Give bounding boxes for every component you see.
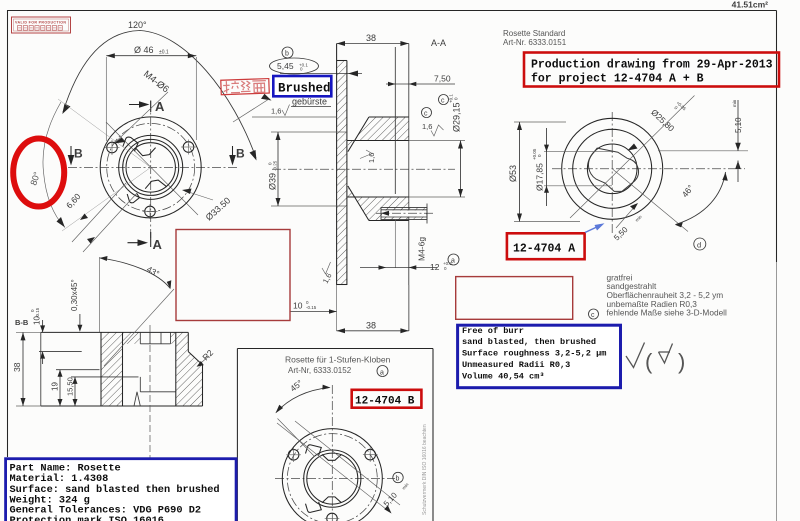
svg-text:1,6: 1,6 — [367, 153, 376, 163]
svg-text:12-4704 A: 12-4704 A — [513, 243, 575, 256]
svg-text:): ) — [678, 349, 685, 374]
svg-text:15,50: 15,50 — [66, 377, 75, 396]
svg-text:A-A: A-A — [431, 38, 446, 48]
svg-text:1,6: 1,6 — [422, 122, 432, 131]
svg-text:c: c — [591, 312, 595, 319]
svg-text:41.51cm²: 41.51cm² — [732, 0, 769, 10]
svg-text:10: 10 — [293, 301, 303, 311]
svg-text:-0.25: -0.25 — [273, 160, 278, 171]
svg-text:120°: 120° — [128, 20, 147, 30]
svg-text:a: a — [451, 258, 455, 265]
svg-text:(: ( — [645, 349, 653, 374]
svg-text:38: 38 — [366, 321, 376, 331]
svg-text:1,6: 1,6 — [271, 107, 281, 116]
svg-text:for project 12-4704 A + B: for project 12-4704 A + B — [531, 73, 704, 86]
svg-text:A: A — [153, 237, 163, 252]
svg-text:c: c — [424, 111, 428, 118]
svg-text:Ø29,15: Ø29,15 — [452, 102, 462, 132]
svg-text:B: B — [74, 147, 83, 161]
svg-text:M4-6g: M4-6g — [417, 237, 427, 261]
svg-text:38: 38 — [366, 33, 376, 43]
svg-text:Ø17,85: Ø17,85 — [535, 163, 545, 191]
svg-text:Rosette für 1-Stufen-Kloben: Rosette für 1-Stufen-Kloben — [285, 355, 391, 365]
svg-text:c: c — [441, 98, 445, 105]
svg-text:-0.15: -0.15 — [35, 307, 40, 318]
svg-text:d: d — [697, 241, 701, 250]
svg-text:a: a — [380, 370, 384, 377]
svg-text:Rosette Standard: Rosette Standard — [503, 29, 565, 38]
svg-text:b: b — [285, 51, 289, 58]
svg-text:sand blasted, then brushed: sand blasted, then brushed — [462, 337, 596, 347]
svg-text:Art-Nr, 6333.0152: Art-Nr, 6333.0152 — [288, 366, 352, 375]
svg-text:7,50: 7,50 — [434, 74, 451, 84]
svg-text:12-4704 B: 12-4704 B — [355, 396, 415, 408]
svg-text:fehlende Maße siehe 3-D-Modell: fehlende Maße siehe 3-D-Modell — [607, 308, 728, 318]
svg-text:38: 38 — [12, 362, 22, 372]
svg-text:Ø39: Ø39 — [268, 173, 278, 190]
svg-text:B-B: B-B — [15, 318, 29, 327]
svg-text:12: 12 — [430, 262, 440, 272]
svg-text:-0.15: -0.15 — [306, 305, 317, 310]
svg-text:5,10: 5,10 — [734, 117, 743, 133]
svg-text:Brushed: Brushed — [278, 82, 331, 96]
svg-text:A: A — [155, 99, 165, 114]
svg-text:Schutzvermerk DIN ISO 16016 be: Schutzvermerk DIN ISO 16016 beachten — [422, 424, 428, 515]
svg-text:b: b — [396, 476, 400, 483]
svg-text:+0.05: +0.05 — [532, 148, 537, 160]
svg-text:Unmeasured Radii R0,3: Unmeasured Radii R0,3 — [462, 360, 570, 370]
svg-text:VALID FOR PRODUCTION: VALID FOR PRODUCTION — [15, 21, 66, 25]
svg-text:0,30x45°: 0,30x45° — [70, 279, 79, 311]
svg-text:B: B — [236, 147, 245, 161]
svg-text:Ø 46: Ø 46 — [134, 45, 154, 55]
svg-text:Art-Nr. 6333.0151: Art-Nr. 6333.0151 — [503, 38, 567, 47]
svg-text:min: min — [732, 99, 737, 107]
svg-text:5,45: 5,45 — [277, 61, 294, 71]
svg-text:Free of burr: Free of burr — [462, 326, 524, 336]
svg-text:19: 19 — [51, 382, 60, 391]
svg-text:Ø53: Ø53 — [508, 165, 518, 182]
svg-text:±0.1: ±0.1 — [159, 50, 169, 56]
svg-text:Surface roughness 3,2-5,2 μm: Surface roughness 3,2-5,2 μm — [462, 349, 606, 359]
svg-text:Volume 40,54 cm³: Volume 40,54 cm³ — [462, 372, 545, 382]
svg-text:gebürste: gebürste — [292, 97, 327, 107]
svg-text:Production drawing from 29-Apr: Production drawing from 29-Apr-2013 — [531, 59, 773, 72]
svg-text:Protection mark ISO 16016: Protection mark ISO 16016 — [10, 515, 164, 521]
